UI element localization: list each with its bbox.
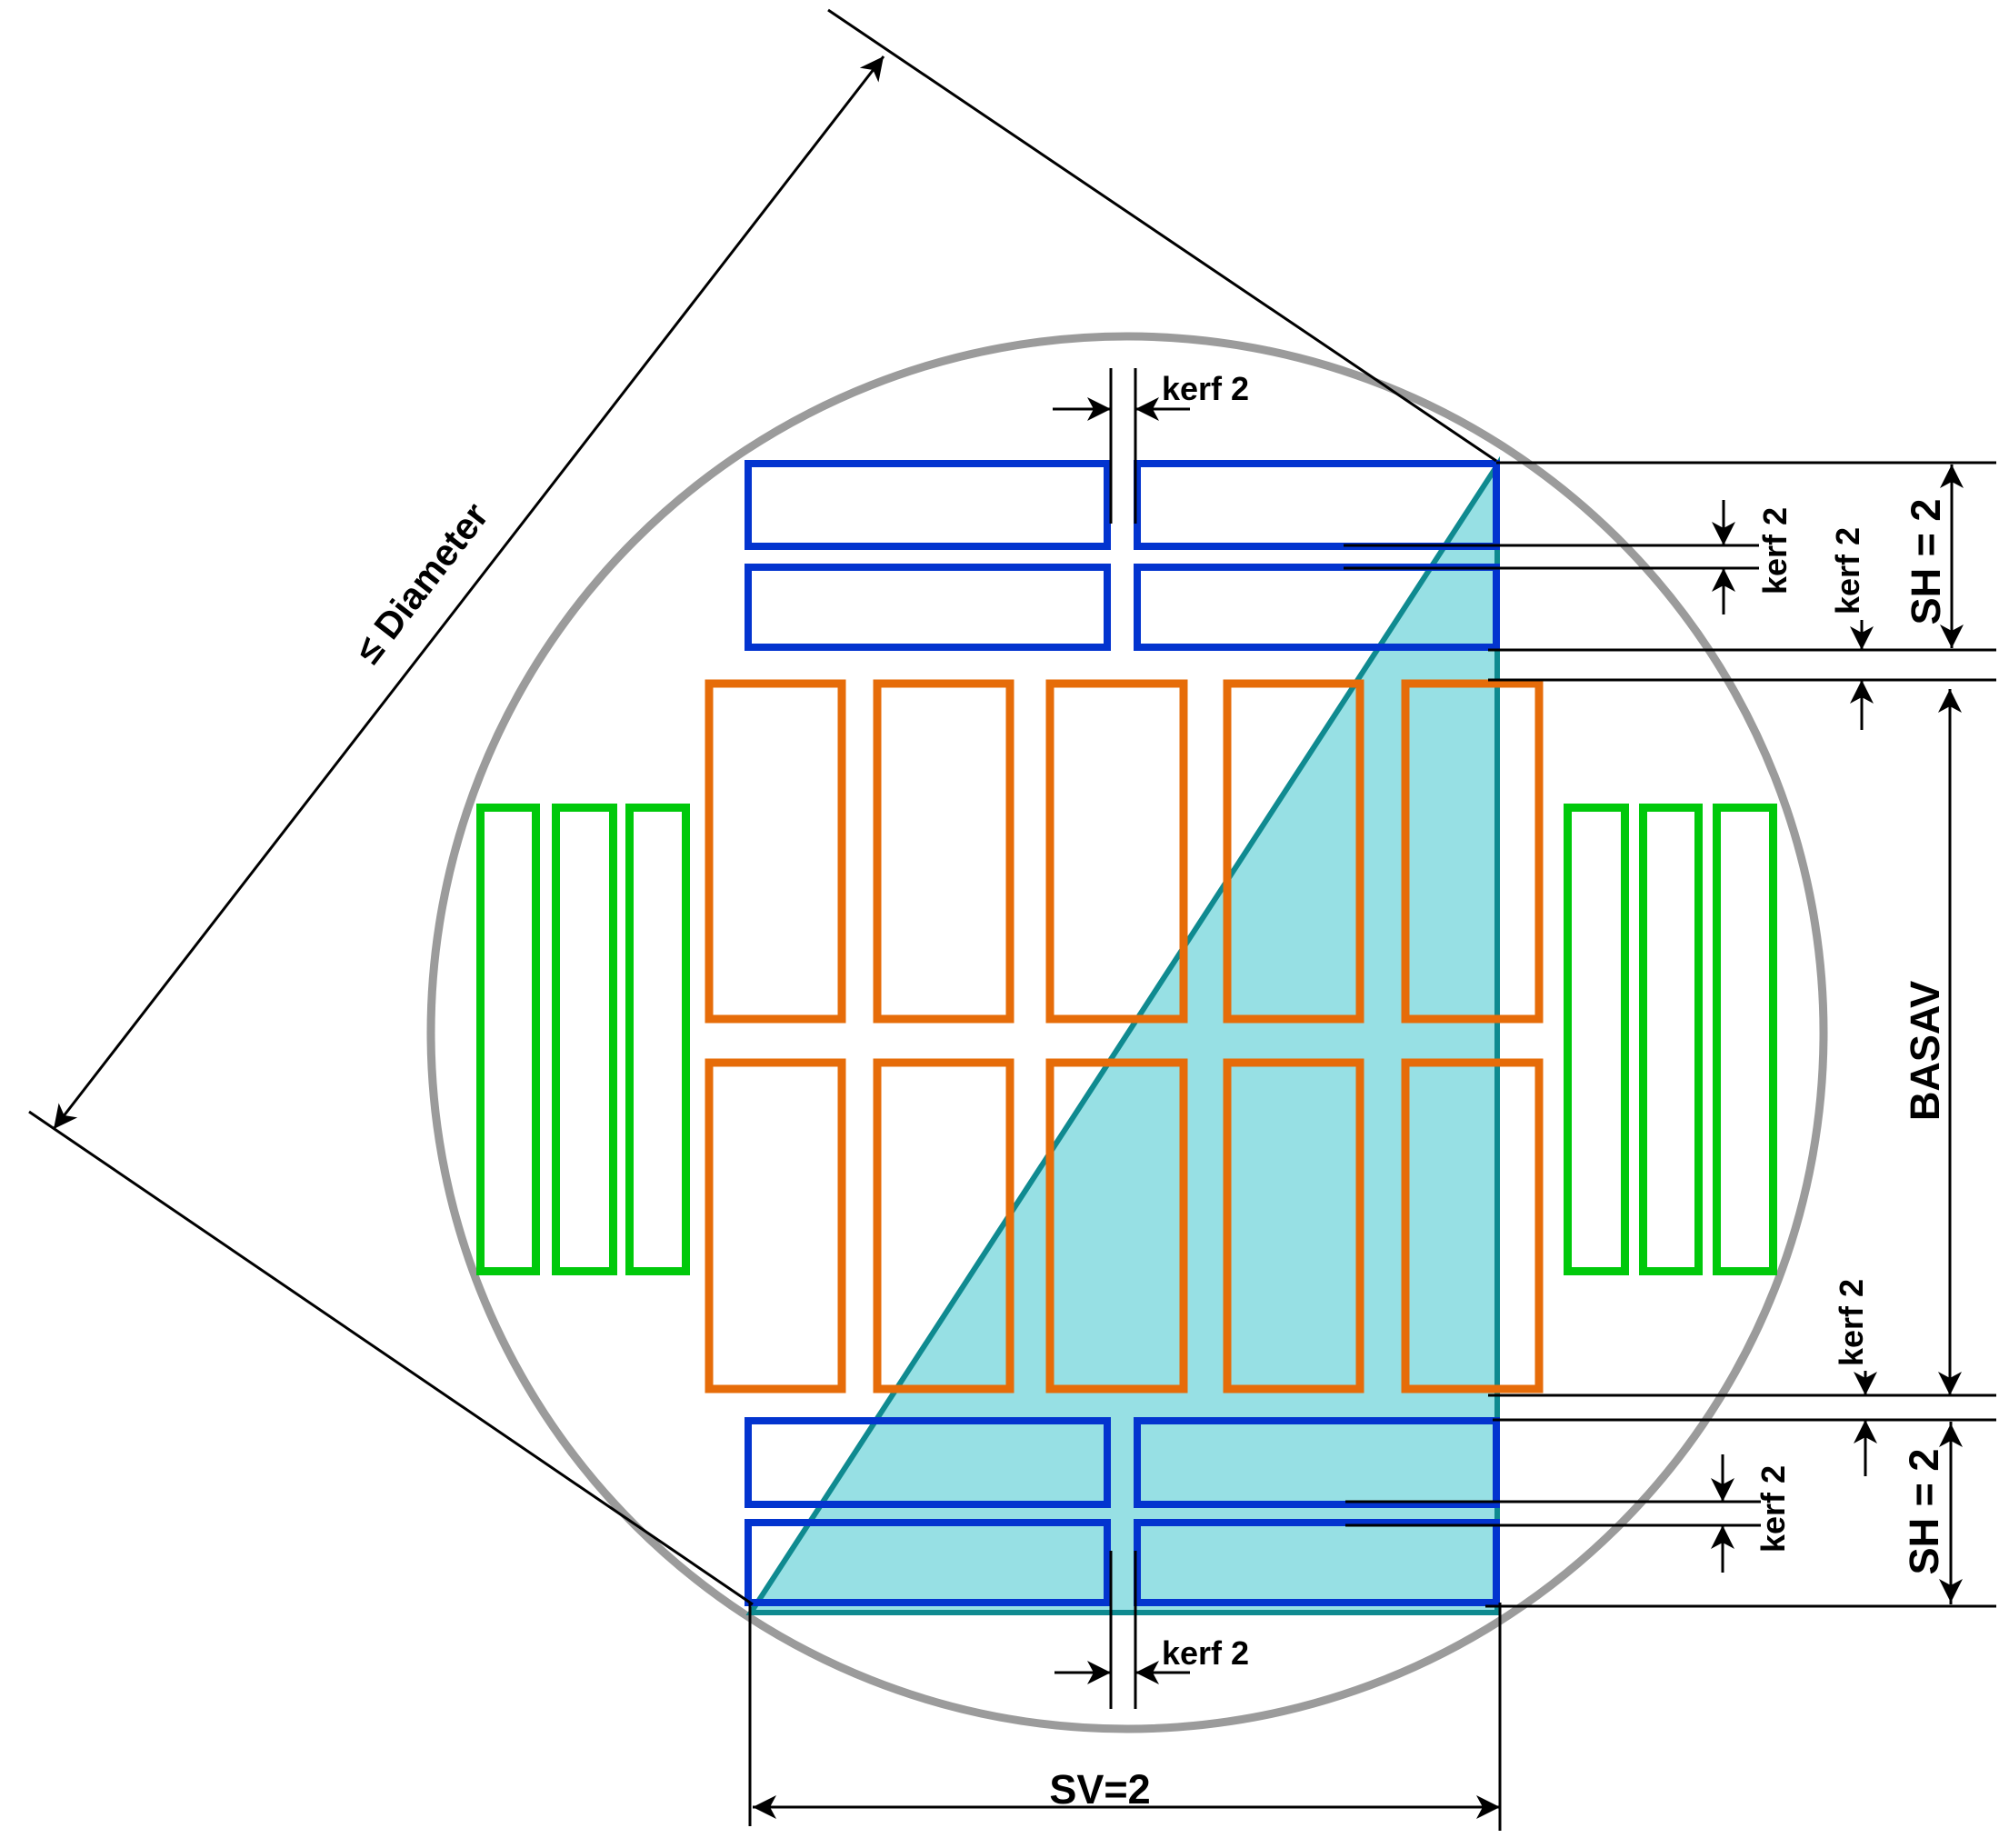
svg-text:kerf 2: kerf 2 [1829, 527, 1866, 614]
svg-text:kerf 2: kerf 2 [1162, 370, 1249, 407]
svg-text:kerf 2: kerf 2 [1162, 1634, 1249, 1672]
svg-text:kerf 2: kerf 2 [1754, 1465, 1792, 1553]
svg-text:BASAV: BASAV [1902, 981, 1948, 1121]
svg-text:kerf 2: kerf 2 [1833, 1279, 1870, 1366]
svg-text:SV=2: SV=2 [1049, 1766, 1150, 1813]
svg-text:SH = 2: SH = 2 [1901, 1449, 1947, 1575]
svg-text:kerf 2: kerf 2 [1756, 507, 1794, 594]
svg-text:SH = 2: SH = 2 [1903, 499, 1949, 625]
